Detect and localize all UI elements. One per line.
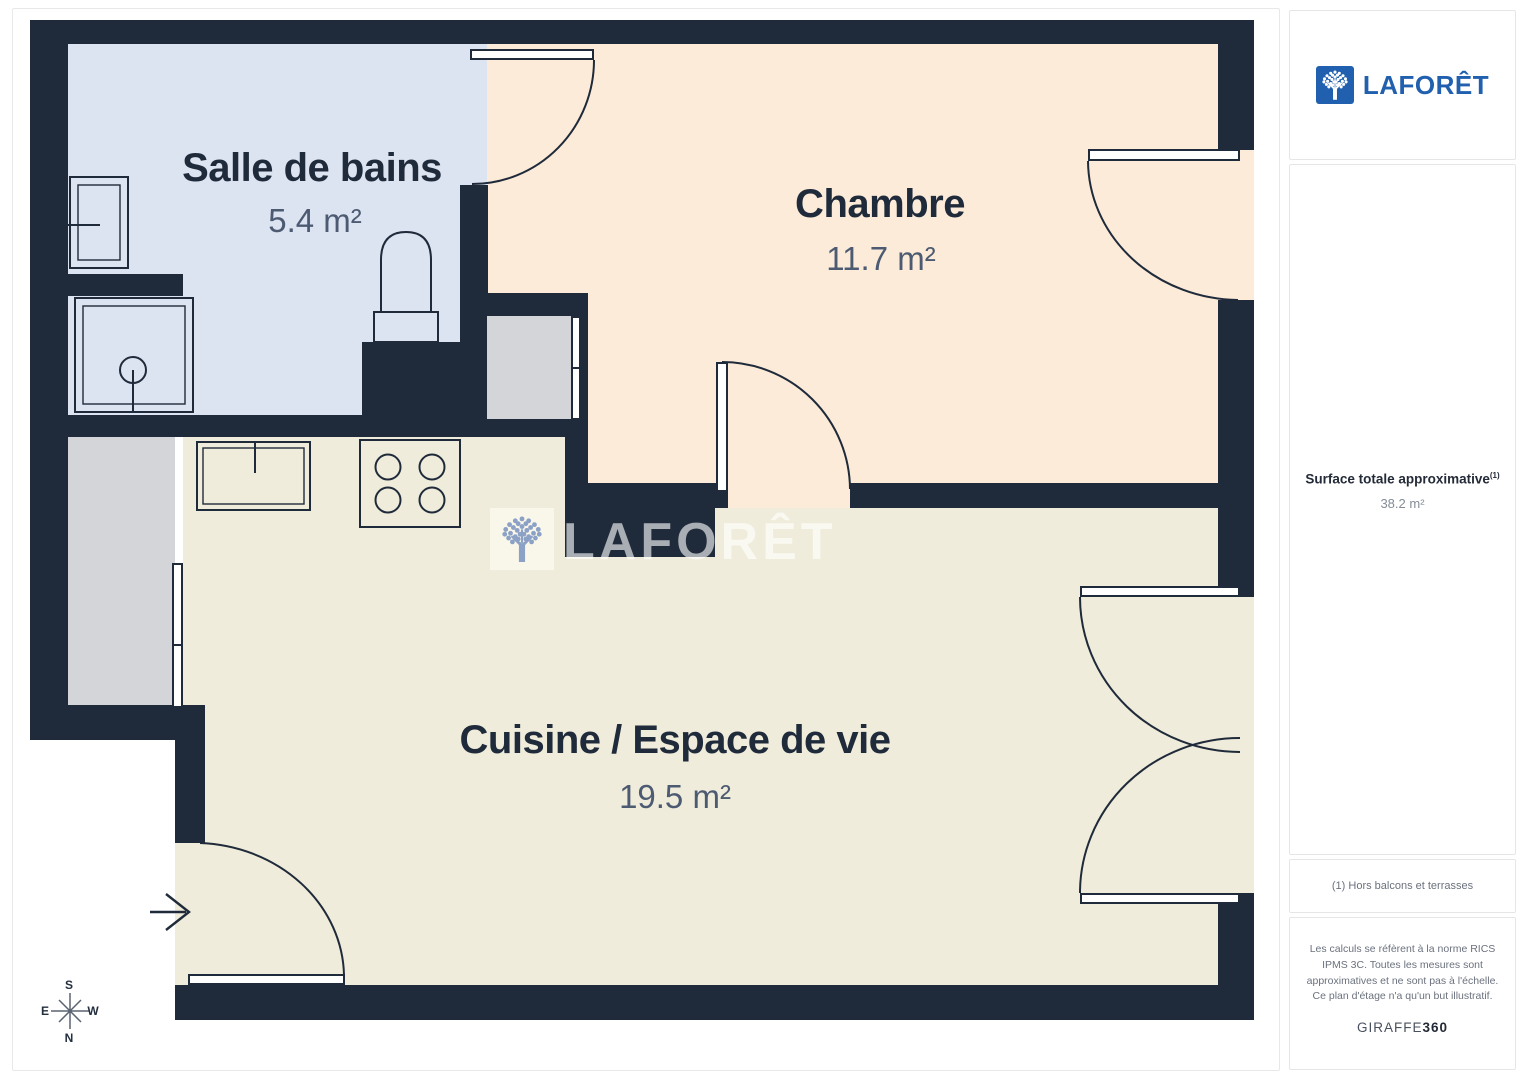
closet-door-divider bbox=[571, 367, 581, 369]
watermark-tree-box bbox=[490, 508, 554, 570]
entry-recess-floor bbox=[175, 843, 205, 985]
wall-segment bbox=[175, 740, 205, 843]
room-floor-bedroom bbox=[588, 293, 1218, 483]
disclaimer-box: Les calculs se réfèrent à la norme RICS … bbox=[1289, 917, 1516, 1070]
wall-segment bbox=[565, 437, 588, 483]
room-label-bedroom: Chambre bbox=[795, 182, 965, 227]
window bbox=[172, 563, 183, 708]
room-label-bathroom: Salle de bains bbox=[182, 146, 442, 191]
french-door-opening bbox=[1218, 597, 1254, 893]
wall-segment bbox=[1218, 20, 1254, 150]
french-door-leaf bbox=[1080, 893, 1240, 904]
watermark-text: LAFORÊT bbox=[563, 512, 837, 572]
wall-segment bbox=[30, 705, 205, 740]
surface-footnote-marker: (1) bbox=[1490, 471, 1500, 480]
tree-icon bbox=[1320, 69, 1350, 101]
wall-segment bbox=[30, 274, 183, 296]
room-label-living: Cuisine / Espace de vie bbox=[460, 718, 891, 763]
logo-square bbox=[1316, 66, 1354, 104]
giraffe360-brand: GIRAFFE360 bbox=[1290, 1020, 1515, 1035]
disclaimer-text: Les calculs se réfèrent à la norme RICS … bbox=[1290, 918, 1515, 1005]
bedroom-living-door-opening bbox=[728, 483, 850, 508]
wall-segment bbox=[1218, 300, 1254, 597]
entry-door-leaf bbox=[188, 974, 345, 985]
door-leaf bbox=[1088, 149, 1240, 161]
french-door-leaf bbox=[1080, 586, 1240, 597]
wall-segment bbox=[30, 20, 1254, 44]
room-area-bathroom: 5.4 m² bbox=[268, 202, 362, 240]
compass-west: W bbox=[87, 1004, 98, 1018]
closet bbox=[487, 316, 572, 419]
wall-segment bbox=[175, 985, 1254, 1020]
floor-plan-page: LAFORÊT Salle de bains 5.4 m² Chambre 11… bbox=[0, 0, 1526, 1079]
compass-east: E bbox=[41, 1004, 49, 1018]
window-divider bbox=[172, 644, 183, 646]
bathroom-door-opening bbox=[460, 44, 488, 185]
footnote-box: (1) Hors balcons et terrasses bbox=[1289, 859, 1516, 913]
surface-label: Surface totale approximative(1) bbox=[1290, 471, 1515, 487]
bedroom-door-opening bbox=[1218, 150, 1254, 300]
balcony-area bbox=[68, 437, 175, 707]
tree-icon bbox=[499, 514, 545, 564]
room-area-living: 19.5 m² bbox=[619, 778, 731, 816]
wall-segment bbox=[850, 483, 1218, 508]
room-area-bedroom: 11.7 m² bbox=[826, 240, 935, 278]
logo-wordmark: LAFORÊT bbox=[1363, 70, 1489, 101]
surface-box: Surface totale approximative(1) 38.2 m² bbox=[1289, 164, 1516, 855]
wall-segment bbox=[30, 20, 68, 740]
footnote-text: (1) Hors balcons et terrasses bbox=[1290, 860, 1515, 912]
surface-value: 38.2 m² bbox=[1290, 496, 1515, 511]
door-leaf bbox=[470, 49, 594, 60]
door-leaf bbox=[716, 362, 728, 492]
logo-box: LAFORÊT bbox=[1289, 10, 1516, 160]
brand-logo: LAFORÊT bbox=[1290, 11, 1515, 159]
compass-north: N bbox=[65, 1031, 74, 1045]
compass-south: S bbox=[65, 978, 73, 992]
